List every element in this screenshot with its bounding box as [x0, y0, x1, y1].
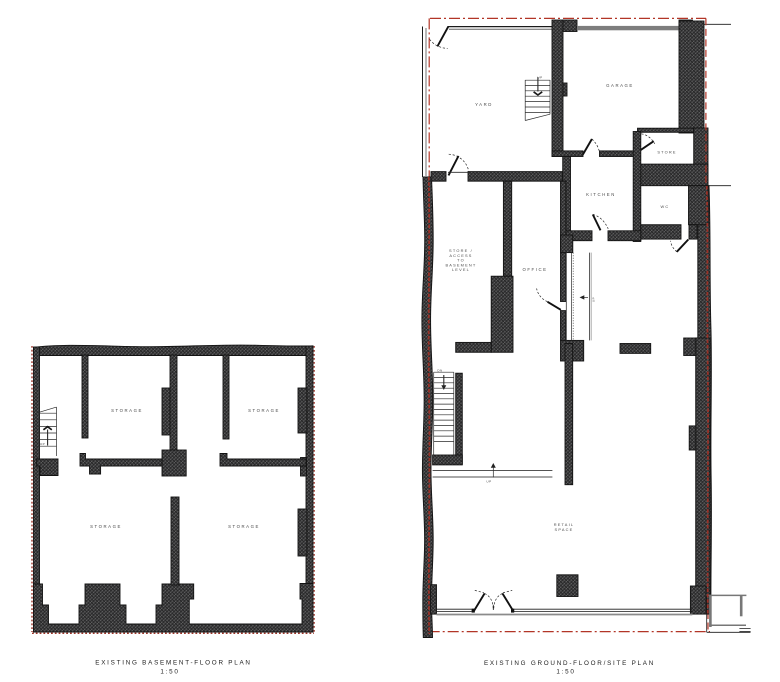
svg-text:KITCHEN: KITCHEN	[586, 192, 616, 197]
svg-text:1:50: 1:50	[160, 669, 179, 676]
svg-text:1:50: 1:50	[556, 669, 575, 676]
svg-text:DN: DN	[437, 369, 442, 373]
svg-text:STORE: STORE	[657, 150, 676, 155]
svg-text:STORAGE: STORAGE	[248, 408, 280, 413]
svg-text:UP: UP	[486, 480, 491, 484]
svg-text:STORAGE: STORAGE	[228, 524, 260, 529]
svg-text:EXISTING BASEMENT-FLOOR PLAN: EXISTING BASEMENT-FLOOR PLAN	[95, 660, 251, 667]
svg-text:OFFICE: OFFICE	[522, 267, 547, 272]
svg-text:YARD: YARD	[475, 102, 493, 107]
svg-text:LEVEL: LEVEL	[452, 267, 470, 272]
svg-text:STORAGE: STORAGE	[111, 408, 143, 413]
svg-text:STORAGE: STORAGE	[90, 524, 122, 529]
svg-text:SPACE: SPACE	[555, 527, 574, 532]
svg-text:UP: UP	[537, 76, 542, 80]
svg-text:UP: UP	[592, 297, 596, 302]
svg-text:WC: WC	[661, 204, 670, 209]
svg-text:EXISTING GROUND-FLOOR/SITE PLA: EXISTING GROUND-FLOOR/SITE PLAN	[484, 660, 655, 667]
svg-text:GARAGE: GARAGE	[606, 83, 634, 88]
svg-text:UP: UP	[40, 442, 45, 446]
